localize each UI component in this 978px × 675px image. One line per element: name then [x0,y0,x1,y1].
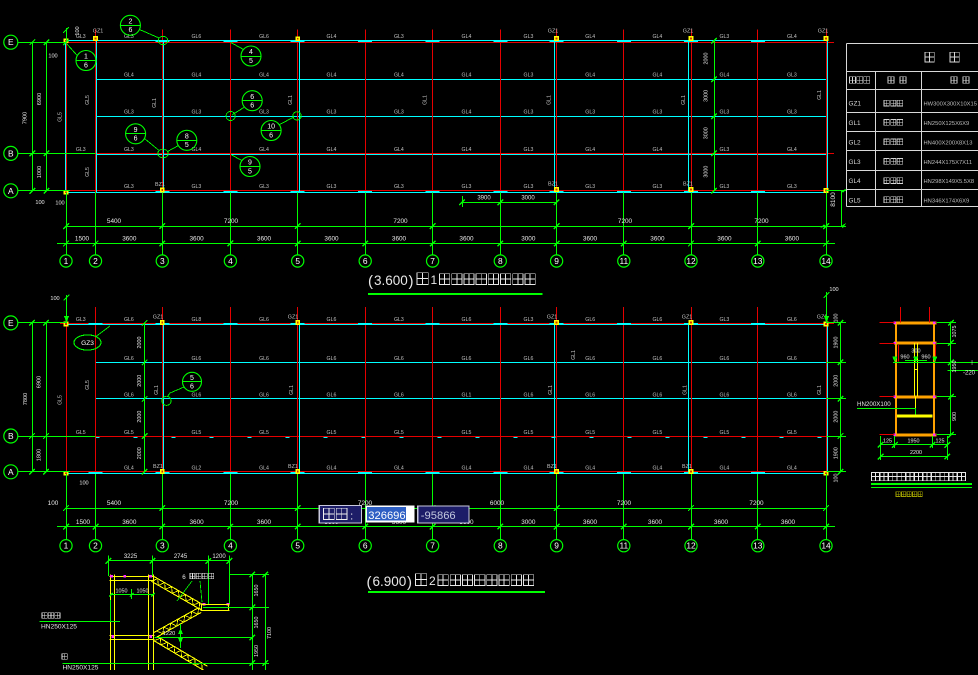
svg-text:3000: 3000 [704,166,710,178]
svg-text:7: 7 [430,256,435,266]
svg-text:GL4: GL4 [652,73,662,79]
svg-text:GL5: GL5 [787,430,797,436]
svg-text:GL6: GL6 [787,392,797,398]
svg-text:GL6: GL6 [191,356,201,362]
svg-text:6: 6 [84,62,88,69]
svg-text:2200: 2200 [910,450,922,456]
svg-text:GL1: GL1 [548,385,554,395]
svg-text:GL4: GL4 [652,147,662,153]
svg-text:2000: 2000 [137,375,143,387]
svg-text:GL6: GL6 [394,356,404,362]
svg-text:6: 6 [182,574,186,581]
svg-text:2: 2 [429,574,436,588]
svg-text:3600: 3600 [717,236,732,243]
svg-text:GL3: GL3 [124,110,134,116]
svg-text:B: B [8,431,14,441]
svg-text:6000: 6000 [490,500,505,507]
svg-text:|: | [971,360,972,366]
svg-text:GL4: GL4 [462,34,472,40]
svg-text:GL6: GL6 [719,356,729,362]
svg-text:1: 1 [431,273,438,287]
svg-text:100: 100 [48,500,59,507]
svg-text:2: 2 [93,541,98,551]
svg-text:1200: 1200 [212,554,226,560]
svg-text:GL3: GL3 [76,147,86,153]
svg-text:GL4: GL4 [394,73,404,79]
svg-text:GL6: GL6 [259,356,269,362]
svg-text:3600: 3600 [648,519,663,526]
svg-text:3600: 3600 [122,236,137,243]
svg-text:GL5: GL5 [719,430,729,436]
svg-text:3600: 3600 [583,519,598,526]
svg-text:100: 100 [75,26,81,35]
svg-text:6.900: 6.900 [373,574,407,589]
svg-text:GL4: GL4 [462,465,472,471]
svg-text:6900: 6900 [37,93,43,105]
svg-text:GL6: GL6 [585,392,595,398]
svg-text:3.600: 3.600 [374,273,408,288]
svg-text:GL4: GL4 [327,147,337,153]
svg-text:9: 9 [134,127,138,134]
svg-text:GL4: GL4 [124,73,134,79]
svg-text:3: 3 [160,256,165,266]
svg-text:1950: 1950 [908,438,920,444]
svg-text:GL4: GL4 [585,465,595,471]
svg-text:HN346X174X6X9: HN346X174X6X9 [924,198,970,204]
svg-text:HN244X175X7X11: HN244X175X7X11 [924,160,973,166]
svg-text:2000: 2000 [704,53,710,65]
svg-text:HN250X125: HN250X125 [41,624,77,631]
svg-text:GL4: GL4 [124,465,134,471]
svg-text:2000: 2000 [833,411,839,423]
svg-text:9: 9 [554,541,559,551]
svg-text:7200: 7200 [224,218,239,225]
svg-text:100: 100 [829,287,838,293]
svg-text:7200: 7200 [617,500,632,507]
svg-text:2: 2 [93,256,98,266]
svg-text:2000: 2000 [137,337,143,349]
svg-text:1: 1 [64,541,69,551]
svg-text:3600: 3600 [583,236,598,243]
svg-text:GL6: GL6 [327,392,337,398]
svg-text:GL5: GL5 [85,167,91,177]
svg-text:GL5: GL5 [259,430,269,436]
svg-text:BZ1: BZ1 [155,182,165,188]
svg-text:3225: 3225 [124,554,138,560]
svg-text:7200: 7200 [618,218,633,225]
svg-text:7900: 7900 [23,112,29,124]
svg-text:GL3: GL3 [394,110,404,116]
svg-text:GL3: GL3 [394,34,404,40]
svg-text:GL4: GL4 [787,147,797,153]
svg-text:12: 12 [686,256,696,266]
svg-text:GL4: GL4 [259,465,269,471]
svg-text:GL4: GL4 [719,73,729,79]
svg-text:GL3: GL3 [719,110,729,116]
svg-text:GL5: GL5 [58,395,64,405]
svg-text:100: 100 [55,201,64,207]
svg-text:E: E [8,37,14,47]
svg-text:GL4: GL4 [394,465,404,471]
svg-text:1050: 1050 [137,588,149,594]
svg-text:GL5: GL5 [394,430,404,436]
svg-text:GL6: GL6 [394,392,404,398]
svg-text:GL6: GL6 [585,356,595,362]
svg-text:GL3: GL3 [124,147,134,153]
svg-text:-95866: -95866 [421,510,456,522]
svg-text:13: 13 [753,256,763,266]
svg-text:HN250X125X6X9: HN250X125X6X9 [924,121,970,127]
svg-text:4: 4 [228,541,233,551]
svg-text:GL3: GL3 [719,147,729,153]
svg-text:GL6: GL6 [462,356,472,362]
svg-text:GL1: GL1 [462,392,472,398]
svg-text:6: 6 [128,27,132,34]
svg-text:GL6: GL6 [585,317,595,323]
svg-text:GL6: GL6 [719,392,729,398]
svg-text:4: 4 [249,49,253,56]
svg-text:HN250X125: HN250X125 [63,665,99,671]
svg-text:GL6: GL6 [787,356,797,362]
svg-text:1075: 1075 [952,326,958,338]
svg-text:GL4: GL4 [327,73,337,79]
svg-text:GL3: GL3 [191,110,201,116]
svg-text:GL5: GL5 [124,430,134,436]
svg-text:GL3: GL3 [652,110,662,116]
svg-text:1500: 1500 [75,236,90,243]
svg-text:125: 125 [936,438,945,444]
svg-text:GL1: GL1 [288,95,294,105]
svg-text:GL2: GL2 [849,140,862,147]
svg-text:GL3: GL3 [394,184,404,190]
svg-text:GL6: GL6 [462,317,472,323]
svg-text:GL4: GL4 [787,34,797,40]
svg-text:GL6: GL6 [652,392,662,398]
svg-text:5: 5 [248,168,252,175]
svg-text:1: 1 [64,256,69,266]
svg-text:GL6: GL6 [327,356,337,362]
svg-text:3000: 3000 [704,90,710,102]
svg-text:3600: 3600 [189,519,204,526]
svg-text:1900: 1900 [833,337,839,349]
svg-text:GL4: GL4 [327,34,337,40]
svg-text:GL4: GL4 [585,147,595,153]
svg-text:GZ1: GZ1 [93,29,103,35]
svg-text:6: 6 [134,136,138,143]
svg-text:GL4: GL4 [462,110,472,116]
svg-text:9: 9 [248,160,252,167]
svg-text:4: 4 [228,256,233,266]
svg-text:GL1: GL1 [152,98,158,108]
svg-text:BZ1: BZ1 [548,182,558,188]
svg-text:HN400X200X8X13: HN400X200X8X13 [924,141,973,147]
svg-text:5: 5 [295,541,300,551]
svg-text:GL6: GL6 [124,392,134,398]
svg-text:GL6: GL6 [191,392,201,398]
svg-text:GL4: GL4 [585,73,595,79]
svg-text:HN200X100: HN200X100 [857,401,891,408]
svg-text:3: 3 [160,541,165,551]
svg-text:GZ1: GZ1 [153,315,163,321]
svg-text:1050: 1050 [116,588,128,594]
svg-text:GL6: GL6 [259,34,269,40]
svg-text:GL3: GL3 [76,317,86,323]
svg-text:1220: 1220 [163,631,175,637]
svg-text:GL3: GL3 [849,159,862,166]
svg-text:GL8: GL8 [191,317,201,323]
svg-text:2000: 2000 [137,447,143,459]
svg-text:7800: 7800 [23,393,29,405]
svg-text:GL1: GL1 [423,95,429,105]
svg-text:GL3: GL3 [585,184,595,190]
svg-text:3600: 3600 [122,519,137,526]
svg-text:A: A [8,186,14,196]
svg-text:5: 5 [190,375,194,382]
svg-text:8100: 8100 [830,192,837,207]
svg-text:A: A [8,467,14,477]
svg-text:7200: 7200 [224,500,239,507]
svg-text:GL1: GL1 [154,385,160,395]
svg-text:7200: 7200 [749,500,764,507]
svg-text:BZ1: BZ1 [683,182,693,188]
svg-text:7200: 7200 [754,218,769,225]
svg-text:960: 960 [900,354,909,360]
svg-text:8: 8 [498,256,503,266]
svg-text:6: 6 [269,132,273,139]
svg-text:GL5: GL5 [191,430,201,436]
svg-text:GL4: GL4 [327,465,337,471]
svg-text:1900: 1900 [833,447,839,459]
svg-text:1650: 1650 [254,617,260,629]
svg-text:GL3: GL3 [719,184,729,190]
svg-text:GL3: GL3 [585,110,595,116]
svg-text:GL1: GL1 [289,385,295,395]
svg-text:GL5: GL5 [585,430,595,436]
svg-text:GL5: GL5 [85,380,91,390]
svg-text:7: 7 [430,541,435,551]
svg-text:6: 6 [190,384,194,391]
svg-text:B: B [8,148,14,158]
svg-text:-220: -220 [963,371,976,377]
svg-text:GL5: GL5 [58,112,64,122]
svg-text:GL3: GL3 [524,317,534,323]
svg-text:GZ1: GZ1 [547,315,557,321]
svg-text:GL6: GL6 [524,392,534,398]
svg-text:GL5: GL5 [652,430,662,436]
svg-text:3000: 3000 [704,127,710,139]
svg-text:2000: 2000 [833,375,839,387]
svg-text:GL4: GL4 [394,147,404,153]
svg-text:GL6: GL6 [259,317,269,323]
svg-text:GZ1: GZ1 [682,315,692,321]
svg-text:GZ1: GZ1 [548,29,558,35]
svg-text:GL3: GL3 [787,73,797,79]
svg-text:100: 100 [833,474,839,483]
svg-text:3600: 3600 [781,519,796,526]
svg-text:GL1: GL1 [849,120,862,127]
svg-text:1650: 1650 [254,585,260,597]
svg-text:3600: 3600 [324,236,339,243]
svg-text:GL3: GL3 [719,317,729,323]
svg-text:1950: 1950 [952,361,958,373]
svg-text:GL4: GL4 [787,465,797,471]
svg-text:GL6: GL6 [787,317,797,323]
svg-text:GL6: GL6 [124,317,134,323]
svg-text:5: 5 [249,58,253,65]
svg-text:3600: 3600 [189,236,204,243]
svg-text:GL3: GL3 [259,184,269,190]
svg-text:13: 13 [753,541,763,551]
svg-text:6: 6 [363,541,368,551]
svg-text:GL3: GL3 [524,73,534,79]
svg-text:5400: 5400 [107,500,122,507]
svg-text:11: 11 [619,541,628,551]
svg-text:3000: 3000 [521,519,536,526]
svg-text:GL5: GL5 [524,430,534,436]
svg-text:GL4: GL4 [524,465,534,471]
svg-text:GL3: GL3 [524,147,534,153]
svg-text:1: 1 [84,54,88,61]
svg-text:GL6: GL6 [652,356,662,362]
svg-text:2: 2 [128,19,132,26]
svg-text:3600: 3600 [257,236,272,243]
svg-text:E: E [8,318,14,328]
svg-text:3600: 3600 [650,236,665,243]
svg-text:14: 14 [821,541,831,551]
svg-text:GL6: GL6 [524,356,534,362]
svg-text:3000: 3000 [521,196,535,202]
svg-text:1000: 1000 [37,166,43,178]
svg-text:(: ( [368,273,373,290]
svg-text:GL4: GL4 [849,178,862,185]
svg-text:2000: 2000 [137,411,143,423]
svg-text:GL6: GL6 [124,356,134,362]
svg-text:125: 125 [883,438,892,444]
svg-text:GL1: GL1 [681,95,687,105]
svg-text:(: ( [367,574,372,591]
svg-text:1800: 1800 [37,449,43,461]
svg-text:100: 100 [35,200,44,206]
svg-text:HN298X149X5.5X8: HN298X149X5.5X8 [924,179,975,185]
svg-text:6: 6 [250,94,254,101]
svg-text:GL3: GL3 [327,184,337,190]
svg-text:GL2: GL2 [191,465,201,471]
svg-text:3600: 3600 [459,236,474,243]
svg-text:6900: 6900 [37,376,43,388]
svg-text:12: 12 [686,541,696,551]
svg-text:GL6: GL6 [191,34,201,40]
svg-text:7100: 7100 [267,627,273,639]
svg-text:GL1: GL1 [817,385,823,395]
svg-text:GL3: GL3 [524,110,534,116]
svg-text:10: 10 [267,124,275,131]
svg-text::: : [350,511,353,523]
svg-text:GL4: GL4 [585,34,595,40]
svg-text:1500: 1500 [76,519,91,526]
svg-text:GL3: GL3 [719,34,729,40]
svg-text:GL5: GL5 [76,430,86,436]
svg-text:100: 100 [48,54,57,60]
svg-text:100: 100 [50,296,59,302]
svg-text:GL1: GL1 [571,350,577,360]
svg-text:3600: 3600 [392,236,407,243]
svg-text:8: 8 [498,541,503,551]
svg-text:GZ1: GZ1 [288,315,298,321]
svg-text:100: 100 [79,481,88,487]
svg-text:): ) [407,574,412,591]
svg-text:GZ3: GZ3 [81,340,94,347]
svg-text:GL3: GL3 [524,184,534,190]
svg-text:GL4: GL4 [652,34,662,40]
svg-text:9: 9 [554,256,559,266]
svg-text:GL4: GL4 [462,73,472,79]
svg-text:3600: 3600 [785,236,800,243]
svg-text:GL3: GL3 [462,184,472,190]
svg-text:3600: 3600 [714,519,729,526]
svg-text:5: 5 [185,142,189,149]
svg-text:GL6: GL6 [259,392,269,398]
svg-text:GL4: GL4 [191,73,201,79]
svg-text:8: 8 [185,134,189,141]
svg-text:GZ1: GZ1 [849,101,862,108]
svg-text:GL5: GL5 [85,95,91,105]
svg-text:14: 14 [821,256,831,266]
svg-text:3900: 3900 [477,196,491,202]
svg-text:3000: 3000 [521,236,536,243]
svg-text:GL4: GL4 [462,147,472,153]
svg-text:2745: 2745 [174,554,188,560]
svg-text:GL5: GL5 [849,197,862,204]
svg-text:GL1: GL1 [817,90,823,100]
svg-text:GZ1: GZ1 [818,29,828,35]
svg-text:GL3: GL3 [524,34,534,40]
svg-text:5: 5 [295,256,300,266]
svg-text:GL5: GL5 [327,430,337,436]
svg-text:960: 960 [921,354,930,360]
svg-text:7200: 7200 [393,218,408,225]
svg-text:GL1: GL1 [683,385,689,395]
svg-text:100: 100 [833,314,839,323]
svg-text:GL3: GL3 [787,184,797,190]
svg-text:GL3: GL3 [787,110,797,116]
svg-text:3600: 3600 [257,519,272,526]
svg-text:GL6: GL6 [652,317,662,323]
svg-text:GL4: GL4 [652,465,662,471]
svg-text:HW300X300X10X15: HW300X300X10X15 [924,102,978,108]
svg-text:GL6: GL6 [327,317,337,323]
svg-text:GL3: GL3 [394,317,404,323]
svg-text:GL3: GL3 [652,184,662,190]
svg-text:GZ1: GZ1 [683,29,693,35]
svg-text:GL5: GL5 [462,430,472,436]
svg-text:900: 900 [952,412,958,421]
svg-text:GL4: GL4 [259,73,269,79]
svg-text:6: 6 [363,256,368,266]
svg-text:): ) [409,273,414,290]
svg-text:6: 6 [250,103,254,110]
svg-text:GL4: GL4 [259,147,269,153]
svg-text:GL3: GL3 [191,184,201,190]
svg-text:GL3: GL3 [327,110,337,116]
svg-text:5400: 5400 [107,218,122,225]
svg-text:300: 300 [911,348,920,354]
svg-text:GL4: GL4 [719,465,729,471]
svg-text:GL3: GL3 [259,110,269,116]
svg-text:GL3: GL3 [124,184,134,190]
svg-text:326696: 326696 [368,510,405,522]
svg-text:GL1: GL1 [547,95,553,105]
svg-text:1950: 1950 [254,645,260,657]
